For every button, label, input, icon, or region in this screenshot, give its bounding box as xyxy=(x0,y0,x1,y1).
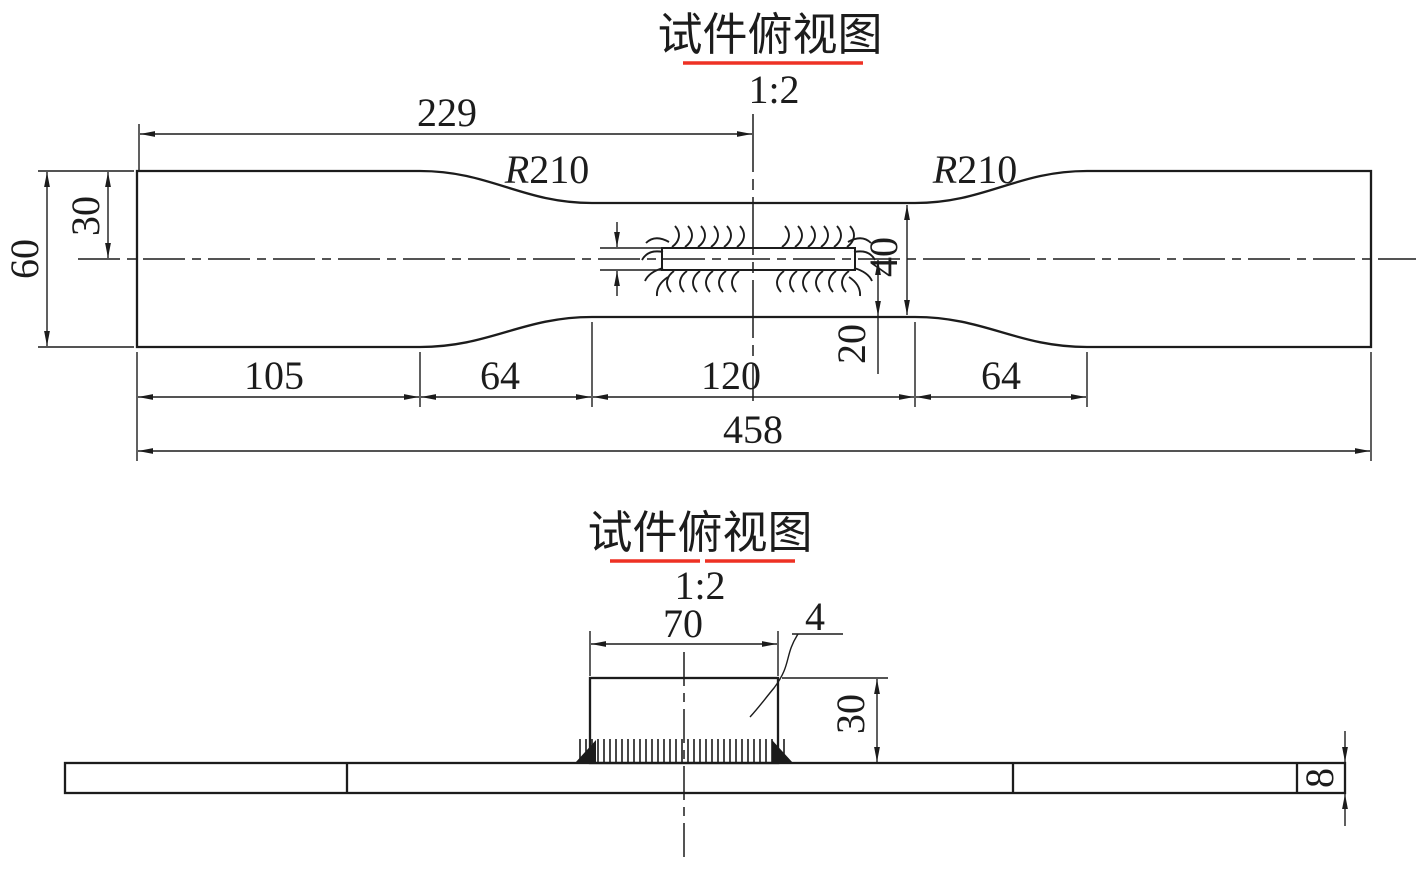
dim-458: 458 xyxy=(138,407,1370,452)
leader-4-label: 4 xyxy=(805,594,825,639)
top-view-title: 试件俯视图 xyxy=(657,10,882,60)
dim-229: 229 xyxy=(139,90,752,170)
dim-64-left-label: 64 xyxy=(480,353,520,398)
dim-30-side-label: 30 xyxy=(828,694,873,734)
dim-120-label: 120 xyxy=(701,353,761,398)
dim-458-label: 458 xyxy=(723,407,783,452)
dim-105-label: 105 xyxy=(244,353,304,398)
leader-4-line xyxy=(750,634,798,717)
weld-marks-below xyxy=(667,271,849,292)
engineering-drawing: 试件俯视图 1:2 229 R210 xyxy=(0,0,1417,869)
side-weld-hatch xyxy=(580,739,784,762)
dim-20-label: 20 xyxy=(829,324,874,364)
dim-30-label: 30 xyxy=(63,196,108,236)
dim-30: 30 xyxy=(63,172,108,258)
weld-marks-above xyxy=(672,226,854,247)
side-view: 试件俯视图 1:2 70 4 xyxy=(65,508,1345,858)
dim-60-label: 60 xyxy=(2,239,47,279)
dim-30-side: 30 xyxy=(782,678,888,762)
top-view: 试件俯视图 1:2 229 R210 xyxy=(2,10,1416,461)
dim-8: 8 xyxy=(1297,731,1345,826)
dim-70-label: 70 xyxy=(663,601,703,646)
radius-label-left: R210 xyxy=(504,147,589,192)
dim-40-label: 40 xyxy=(861,237,906,277)
drawing-page: 试件俯视图 1:2 229 R210 xyxy=(0,0,1417,869)
dim-229-label: 229 xyxy=(417,90,477,135)
radius-label-right: R210 xyxy=(932,147,1017,192)
dim-64-right-label: 64 xyxy=(981,353,1021,398)
base-plate-outline xyxy=(65,763,1345,793)
fillet-weld-right xyxy=(772,740,793,763)
side-view-title: 试件俯视图 xyxy=(587,508,812,558)
dim-40: 40 xyxy=(861,205,907,315)
dim-8-label: 8 xyxy=(1297,768,1342,788)
top-view-scale: 1:2 xyxy=(748,67,799,112)
weld-fan-left xyxy=(642,238,669,296)
